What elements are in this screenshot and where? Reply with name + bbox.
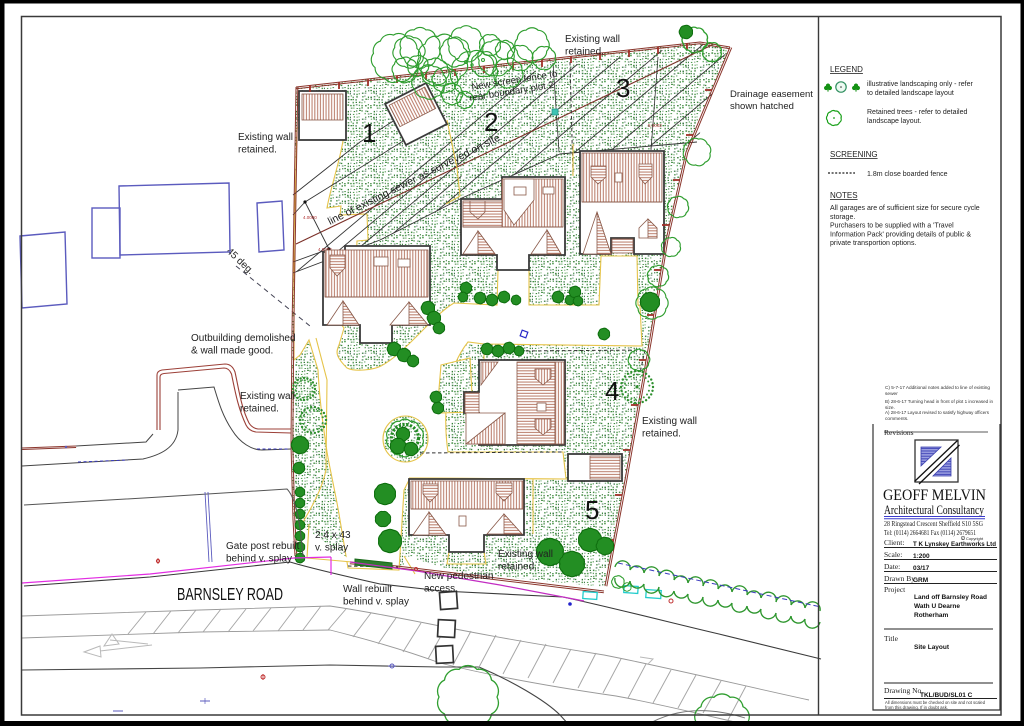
svg-text:c: c <box>962 537 964 541</box>
svg-text:TKL/BUD/SL01 C: TKL/BUD/SL01 C <box>920 692 973 699</box>
svg-text:NOTES: NOTES <box>830 191 858 200</box>
svg-text:C) 5-7-17 Additional notes add: C) 5-7-17 Additional notes added to line… <box>885 385 990 391</box>
svg-text:Land off Barnsley Road: Land off Barnsley Road <box>914 594 987 601</box>
svg-text:1: 1 <box>362 118 376 148</box>
svg-text:T K Lynskey Earthworks Ltd: T K Lynskey Earthworks Ltd <box>913 541 996 548</box>
svg-text:2: 2 <box>484 107 498 137</box>
svg-text:5.0002: 5.0002 <box>648 123 662 128</box>
svg-text:sewer: sewer <box>885 391 898 397</box>
svg-text:from this drawing. If in doubt: from this drawing. If in doubt ask. <box>885 705 948 710</box>
svg-text:Drawing No.: Drawing No. <box>884 686 923 695</box>
svg-text:03/17: 03/17 <box>913 565 930 572</box>
svg-text:Scale:: Scale: <box>884 550 902 559</box>
svg-text:LEGEND: LEGEND <box>830 65 863 74</box>
svg-text:Client:: Client: <box>884 538 904 547</box>
svg-text:Date:: Date: <box>884 562 900 571</box>
svg-text:28 Ringstead Crescent Sheffiel: 28 Ringstead Crescent Sheffield S10 5SG <box>884 519 983 528</box>
svg-text:Wath U Dearne: Wath U Dearne <box>914 603 960 610</box>
svg-text:B) 28-6-17 Turning head in fro: B) 28-6-17 Turning head in front of plot… <box>885 399 993 405</box>
svg-text:SCREENING: SCREENING <box>830 150 878 159</box>
svg-text:4.0000: 4.0000 <box>303 215 317 220</box>
svg-text:Architectural Consultancy: Architectural Consultancy <box>884 503 985 517</box>
svg-text:1:200: 1:200 <box>913 553 930 560</box>
svg-text:Rotherham: Rotherham <box>914 612 949 619</box>
svg-text:GRM: GRM <box>913 577 928 584</box>
svg-text:5: 5 <box>585 495 599 525</box>
svg-text:2.4 x 43v. splay: 2.4 x 43v. splay <box>315 530 351 554</box>
svg-text:BARNSLEY ROAD: BARNSLEY ROAD <box>177 584 283 604</box>
svg-text:Revisions: Revisions <box>884 428 914 437</box>
svg-text:3: 3 <box>616 73 630 103</box>
svg-text:Site Layout: Site Layout <box>914 644 950 651</box>
svg-text:Title: Title <box>884 634 899 643</box>
svg-text:Gate post rebuiltbehind v. spl: Gate post rebuiltbehind v. splay <box>226 541 300 565</box>
svg-text:A) 28-6-17 Layout revised to s: A) 28-6-17 Layout revised to satisfy hig… <box>885 410 990 416</box>
svg-text:4: 4 <box>605 376 619 406</box>
svg-text:GEOFF MELVIN: GEOFF MELVIN <box>883 487 986 504</box>
svg-text:Drawn By: Drawn By <box>884 574 915 583</box>
svg-text:1.8m close boarded fence: 1.8m close boarded fence <box>867 171 948 178</box>
svg-text:Project: Project <box>884 585 906 594</box>
svg-text:comments.: comments. <box>885 416 908 422</box>
